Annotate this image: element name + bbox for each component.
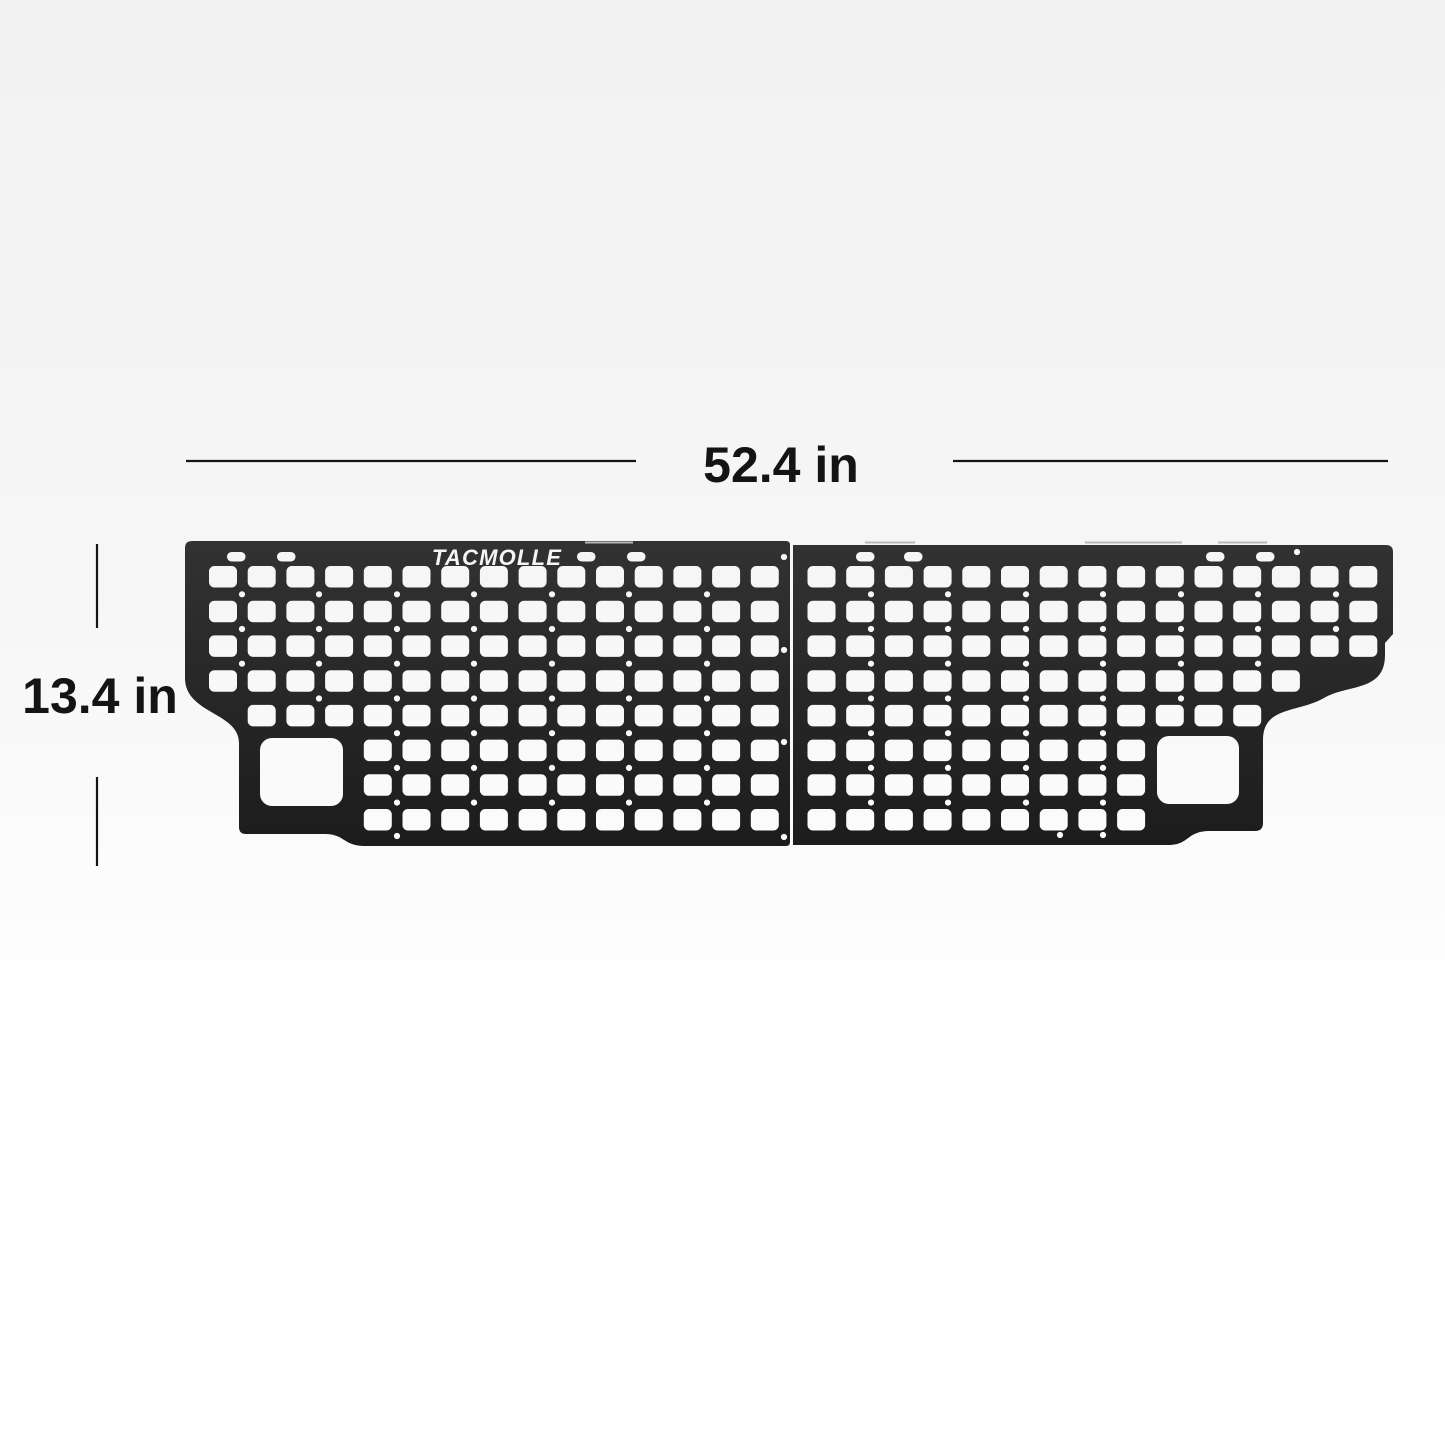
molle-panel-right-half: [793, 545, 1393, 845]
diagram-canvas: 52.4 in 13.4 in TACMOLLE: [0, 0, 1445, 1445]
brand-logo: TACMOLLE: [432, 545, 562, 570]
molle-panel: TACMOLLE: [185, 541, 1393, 846]
molle-panel-left-half: [185, 541, 790, 846]
width-dimension-label: 52.4 in: [703, 437, 859, 493]
height-dimension-label: 13.4 in: [22, 668, 178, 724]
product-dimension-diagram: 52.4 in 13.4 in TACMOLLE: [0, 0, 1445, 1445]
width-dimension: 52.4 in: [186, 437, 1388, 493]
height-dimension: 13.4 in: [22, 544, 178, 866]
